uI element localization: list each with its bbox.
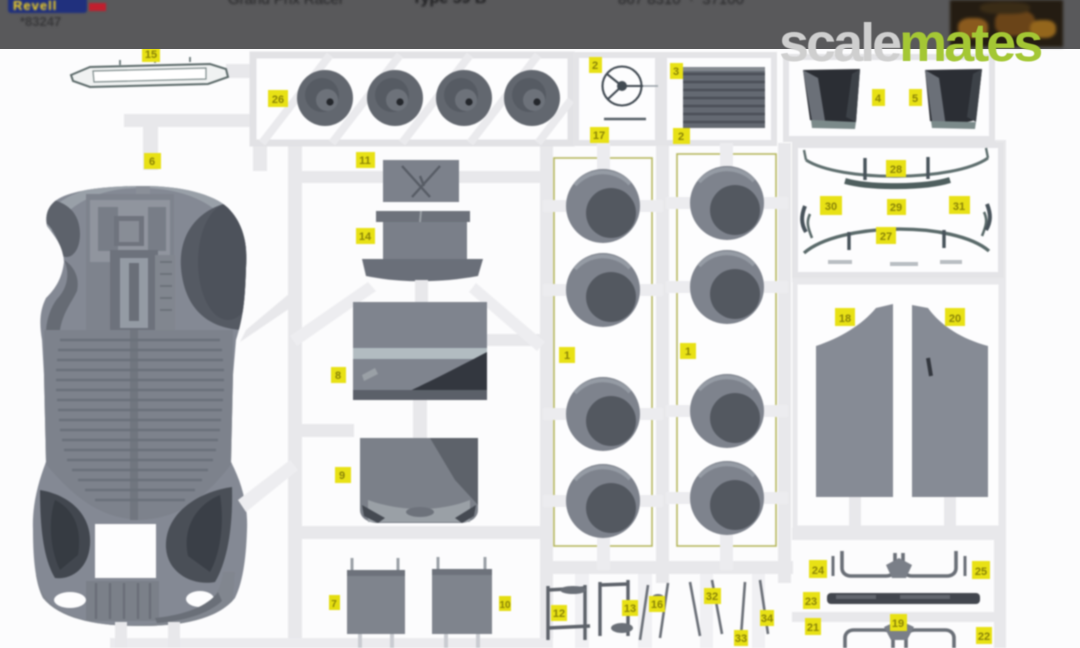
svg-text:26: 26 [272,94,284,106]
svg-text:16: 16 [651,599,663,611]
svg-text:5: 5 [912,93,918,105]
svg-text:10: 10 [499,600,511,611]
svg-text:14: 14 [359,231,372,243]
svg-text:20: 20 [949,313,961,325]
svg-text:23: 23 [805,596,817,608]
svg-text:19: 19 [892,618,904,630]
svg-text:18: 18 [839,313,851,325]
svg-text:4: 4 [875,93,882,105]
svg-text:13: 13 [624,603,636,615]
svg-text:24: 24 [812,565,825,577]
svg-text:29: 29 [890,202,902,214]
svg-text:30: 30 [825,201,837,213]
svg-text:6: 6 [149,156,155,168]
svg-text:12: 12 [553,608,565,620]
svg-text:25: 25 [975,566,987,578]
svg-text:27: 27 [880,231,892,243]
svg-text:3: 3 [673,66,679,78]
svg-text:33: 33 [735,633,747,645]
svg-text:1: 1 [564,350,570,362]
svg-text:22: 22 [978,631,990,643]
svg-text:21: 21 [807,622,819,634]
svg-text:34: 34 [761,613,774,625]
svg-text:8: 8 [335,370,341,382]
svg-text:17: 17 [593,130,605,142]
svg-text:2: 2 [592,60,598,72]
svg-text:11: 11 [359,155,371,167]
svg-text:32: 32 [706,591,718,603]
svg-text:28: 28 [890,164,902,176]
svg-text:9: 9 [339,470,345,482]
svg-text:31: 31 [953,201,965,213]
svg-text:15: 15 [145,49,157,61]
svg-text:7: 7 [331,599,337,610]
svg-text:1: 1 [685,346,691,358]
svg-text:2: 2 [678,131,684,143]
